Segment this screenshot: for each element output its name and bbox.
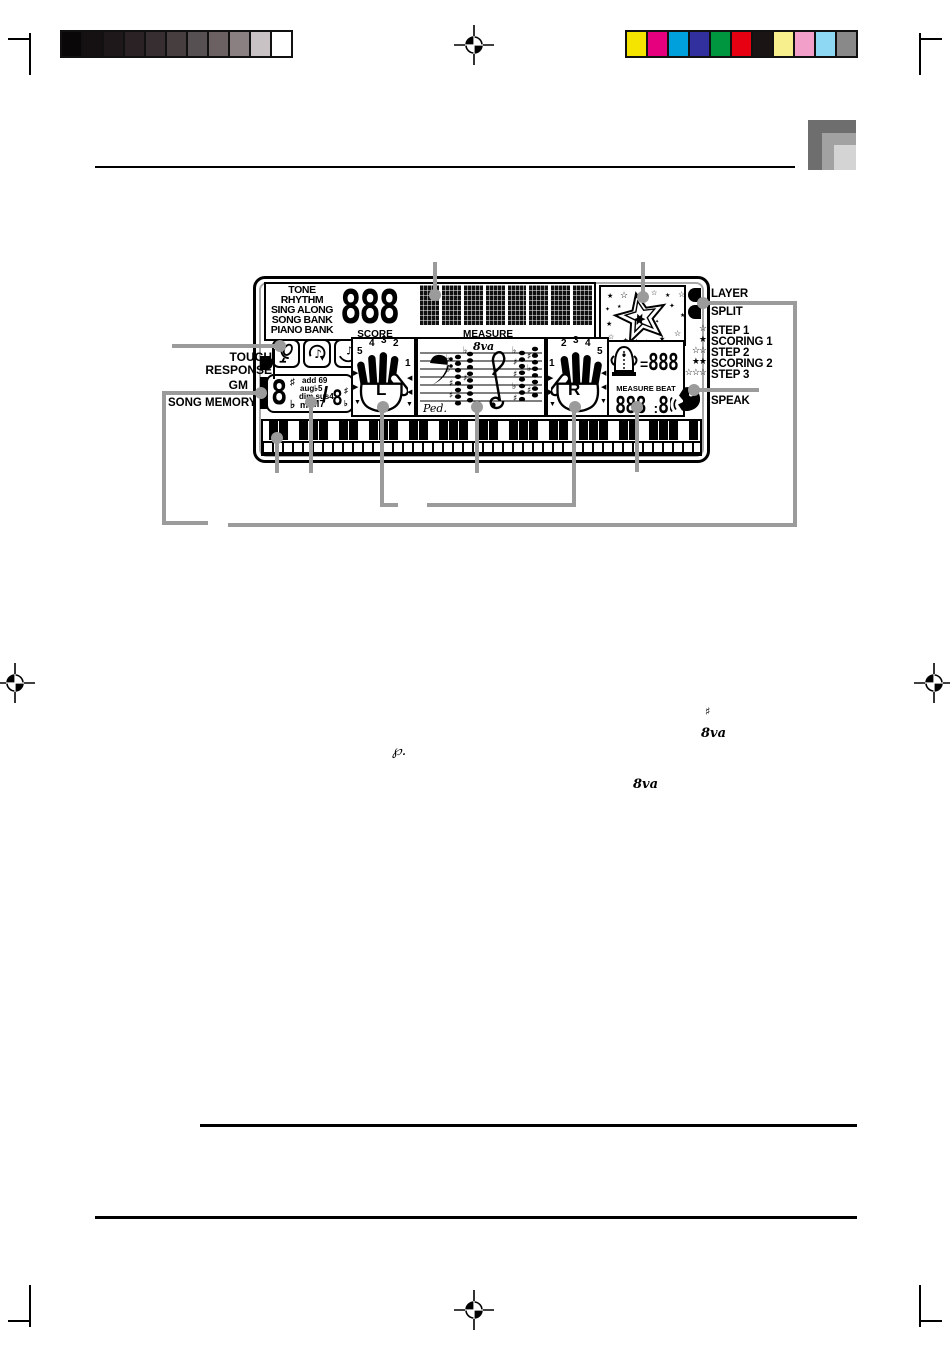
measure-beat-display: 888:8	[615, 393, 672, 419]
white-key	[534, 443, 542, 452]
registration-crosshair-icon	[914, 663, 950, 703]
callout-line	[695, 388, 759, 392]
note-guide-arrow: ▼	[549, 401, 556, 408]
trim-mark	[919, 38, 942, 40]
grayscale-swatch	[81, 30, 104, 58]
small-star-decoration: ☆	[651, 290, 657, 297]
trim-mark	[919, 1320, 942, 1322]
color-swatch	[814, 30, 837, 58]
callout-line	[572, 406, 576, 507]
black-key	[349, 421, 358, 440]
corner-decoration-light	[834, 145, 856, 170]
black-key	[409, 421, 418, 440]
header-rule	[95, 166, 795, 168]
black-key	[689, 421, 698, 440]
black-key	[459, 421, 468, 440]
grayscale-swatch	[207, 30, 230, 58]
small-star-decoration: ✦	[669, 303, 675, 310]
matrix-cell	[486, 285, 505, 325]
svg-text:♯: ♯	[513, 394, 517, 404]
beat-digit: 8	[658, 393, 669, 419]
black-key	[559, 421, 568, 440]
color-swatch	[688, 30, 711, 58]
white-key	[264, 443, 272, 452]
white-key	[414, 443, 422, 452]
white-key	[644, 443, 652, 452]
white-key	[674, 443, 682, 452]
right-hand-label: R	[568, 380, 580, 400]
manual-page: TONE RHYTHM SING ALONG SONG BANK PIANO B…	[0, 0, 950, 1360]
white-key	[504, 443, 512, 452]
chord-root-digit: 8	[271, 377, 287, 410]
svg-text:♯: ♯	[449, 379, 453, 389]
svg-text:♪: ♪	[314, 347, 322, 361]
callout-line	[705, 301, 797, 305]
scoring1-stars: ★	[684, 335, 706, 344]
svg-text:♭: ♭	[527, 364, 531, 374]
trim-mark	[8, 1320, 31, 1322]
black-key	[489, 421, 498, 440]
white-key	[344, 443, 352, 452]
note-guide-arrow: ◀	[601, 384, 606, 391]
black-key	[589, 421, 598, 440]
white-key	[454, 443, 462, 452]
black-key	[339, 421, 348, 440]
note-guide-arrow: ▶	[548, 375, 553, 382]
matrix-cell	[464, 285, 483, 325]
callout-line	[228, 523, 797, 527]
mode-label-piano-bank: PIANO BANK	[266, 325, 338, 335]
tempo-digits: 888	[648, 352, 678, 374]
black-key	[419, 421, 428, 440]
white-key	[624, 443, 632, 452]
note-guide-arrow: ▼	[354, 399, 361, 406]
matrix-cell	[508, 285, 527, 325]
floating-8va-upper: 8va	[701, 726, 726, 741]
color-swatch	[751, 30, 774, 58]
svg-text:♯: ♯	[463, 374, 467, 384]
color-calibration-bar	[627, 30, 858, 58]
callout-dot	[471, 401, 483, 413]
white-key	[284, 443, 292, 452]
black-key	[389, 421, 398, 440]
touch-response-label-line2: RESPONSE	[150, 363, 272, 377]
small-star-decoration: ★	[617, 305, 621, 310]
svg-text:♯: ♯	[513, 370, 517, 380]
callout-line	[309, 400, 313, 473]
matrix-cell	[573, 285, 592, 325]
white-key	[404, 443, 412, 452]
callout-line	[162, 391, 166, 525]
callout-line	[380, 406, 384, 507]
black-key	[669, 421, 678, 440]
sing-along-mode-box: ♪	[303, 339, 331, 368]
section-rule	[200, 1124, 857, 1127]
callout-line	[172, 344, 280, 348]
white-key	[664, 443, 672, 452]
note-guide-arrow: ◀	[407, 375, 412, 382]
callout-line	[380, 503, 398, 507]
grayscale-swatch	[144, 30, 167, 58]
grayscale-swatch	[165, 30, 188, 58]
black-key	[449, 421, 458, 440]
main-number-display: 888	[340, 284, 398, 330]
metronome-character-icon	[609, 344, 639, 383]
callout-dot	[637, 291, 649, 303]
white-key	[294, 443, 302, 452]
black-key	[479, 421, 488, 440]
chord-bass-sharp: ♯	[344, 386, 348, 395]
grayscale-swatch	[249, 30, 272, 58]
white-key	[334, 443, 342, 452]
grayscale-swatch	[102, 30, 125, 58]
small-star-decoration: ★	[606, 321, 612, 328]
chord-bass-digit: 8	[332, 388, 343, 409]
note-guide-arrow: ▼	[406, 401, 413, 408]
color-swatch	[730, 30, 753, 58]
svg-text:♭: ♭	[463, 346, 467, 356]
white-key	[554, 443, 562, 452]
callout-dot	[429, 289, 441, 301]
small-star-decoration: ✦	[605, 307, 610, 313]
callout-line	[162, 391, 262, 395]
split-label: SPLIT	[711, 306, 743, 318]
step3-label: STEP 3	[711, 369, 749, 381]
small-star-decoration: ☆	[678, 291, 685, 299]
left-hand-label: L	[376, 380, 386, 400]
white-key	[464, 443, 472, 452]
octave-8va-label: 8va	[473, 340, 494, 353]
small-star-decoration: ✦	[655, 320, 659, 325]
note-guide-arrow: ▼	[600, 398, 607, 405]
callout-dot	[255, 387, 267, 399]
matrix-cell	[529, 285, 548, 325]
white-key	[364, 443, 372, 452]
black-key	[509, 421, 518, 440]
svg-text:♭: ♭	[446, 354, 450, 364]
chord-sharp: ♯	[290, 377, 295, 388]
speak-label: SPEAK	[711, 395, 750, 407]
black-key	[369, 421, 378, 440]
note-guide-arrow: ▶	[353, 370, 358, 377]
callout-line	[635, 406, 639, 472]
layer-label: LAYER	[711, 288, 748, 300]
color-swatch	[667, 30, 690, 58]
white-key	[684, 443, 692, 452]
svg-text:♯: ♯	[527, 352, 531, 362]
floating-sharp-glyph: ♯	[705, 705, 710, 718]
white-key	[594, 443, 602, 452]
grayscale-swatch	[186, 30, 209, 58]
chord-flat: ♭	[290, 398, 295, 411]
floating-8va-lower: 8va	[633, 777, 658, 792]
small-star-decoration: ☆	[620, 291, 628, 300]
svg-text:♭: ♭	[512, 382, 516, 392]
left-finger-3: 3	[381, 336, 387, 346]
registration-crosshair-icon	[454, 1290, 494, 1330]
note-guide-arrow: ◀	[407, 389, 412, 396]
callout-dot	[697, 297, 709, 309]
right-finger-3: 3	[573, 336, 579, 346]
white-key	[584, 443, 592, 452]
grayscale-swatch	[228, 30, 251, 58]
white-key	[524, 443, 532, 452]
black-key	[649, 421, 658, 440]
svg-text:♭: ♭	[446, 365, 450, 375]
color-swatch	[835, 30, 858, 58]
color-swatch	[793, 30, 816, 58]
callout-line	[475, 406, 479, 473]
matrix-cell	[442, 285, 461, 325]
color-swatch	[625, 30, 648, 58]
black-key	[529, 421, 538, 440]
black-key	[519, 421, 528, 440]
black-key	[299, 421, 308, 440]
black-key	[549, 421, 558, 440]
black-key	[599, 421, 608, 440]
white-key	[654, 443, 662, 452]
callout-dot	[631, 401, 643, 413]
song-memory-label: SONG MEMORY	[168, 397, 254, 409]
callout-dot	[569, 401, 581, 413]
tempo-equals: =	[640, 356, 648, 372]
white-key	[484, 443, 492, 452]
color-swatch	[709, 30, 732, 58]
label-tick	[273, 349, 275, 379]
black-key	[579, 421, 588, 440]
matrix-cell	[551, 285, 570, 325]
black-key	[659, 421, 668, 440]
grayscale-swatch	[60, 30, 83, 58]
lcd-mode-labels: TONE RHYTHM SING ALONG SONG BANK PIANO B…	[266, 285, 338, 335]
callout-line	[162, 521, 208, 525]
registration-crosshair-icon	[0, 663, 35, 703]
note-guide-arrow: ▶	[548, 389, 553, 396]
white-key	[604, 443, 612, 452]
small-star-decoration: ★	[665, 293, 670, 299]
scoring2-stars: ★★	[684, 357, 706, 366]
step2-stars: ☆☆	[684, 346, 706, 355]
step3-stars: ☆☆☆	[684, 368, 706, 377]
step1-stars: ☆	[684, 324, 706, 333]
grayscale-calibration-bar	[62, 30, 293, 58]
dot-matrix-display	[420, 285, 592, 325]
svg-text:♯: ♯	[513, 358, 517, 368]
white-key	[324, 443, 332, 452]
grayscale-swatch	[270, 30, 293, 58]
callout-dot	[688, 384, 700, 396]
svg-text:♭: ♭	[512, 346, 516, 356]
svg-text:♯: ♯	[527, 386, 531, 396]
white-key	[514, 443, 522, 452]
white-key	[384, 443, 392, 452]
touch-response-label-line1: TOUCH	[150, 350, 272, 364]
trim-mark	[8, 38, 31, 40]
footer-rule	[95, 1216, 857, 1219]
small-star-decoration: ☆	[674, 330, 681, 338]
note-guide-arrow: ▶	[353, 384, 358, 391]
pedal-label: Ped.	[422, 402, 447, 415]
callout-dot	[274, 340, 286, 352]
sing-along-note-icon: ♪	[306, 342, 328, 365]
white-key	[314, 443, 322, 452]
white-key	[564, 443, 572, 452]
small-star-decoration: ★	[680, 313, 685, 319]
black-key	[619, 421, 628, 440]
white-key	[434, 443, 442, 452]
white-key	[694, 443, 702, 452]
callout-line	[427, 503, 576, 507]
gm-label: GM	[200, 378, 248, 392]
color-swatch	[646, 30, 669, 58]
registration-crosshair-icon	[454, 25, 494, 65]
white-key	[614, 443, 622, 452]
floating-pedal-glyph: ℘.	[392, 743, 406, 759]
white-key	[354, 443, 362, 452]
grayscale-swatch	[123, 30, 146, 58]
white-key	[444, 443, 452, 452]
white-key	[424, 443, 432, 452]
black-key	[319, 421, 328, 440]
chord-bass-flat: ♭	[344, 399, 348, 408]
chord-slash: /	[322, 382, 328, 408]
white-key	[494, 443, 502, 452]
white-key	[544, 443, 552, 452]
note-guide-arrow: ◀	[601, 370, 606, 377]
callout-line	[793, 301, 797, 527]
small-star-decoration: ★	[607, 293, 613, 300]
svg-text:♯: ♯	[449, 391, 453, 401]
callout-dot	[271, 432, 283, 444]
color-swatch	[772, 30, 795, 58]
white-key	[394, 443, 402, 452]
callout-dot	[305, 396, 317, 408]
callout-dot	[377, 401, 389, 413]
black-key	[439, 421, 448, 440]
